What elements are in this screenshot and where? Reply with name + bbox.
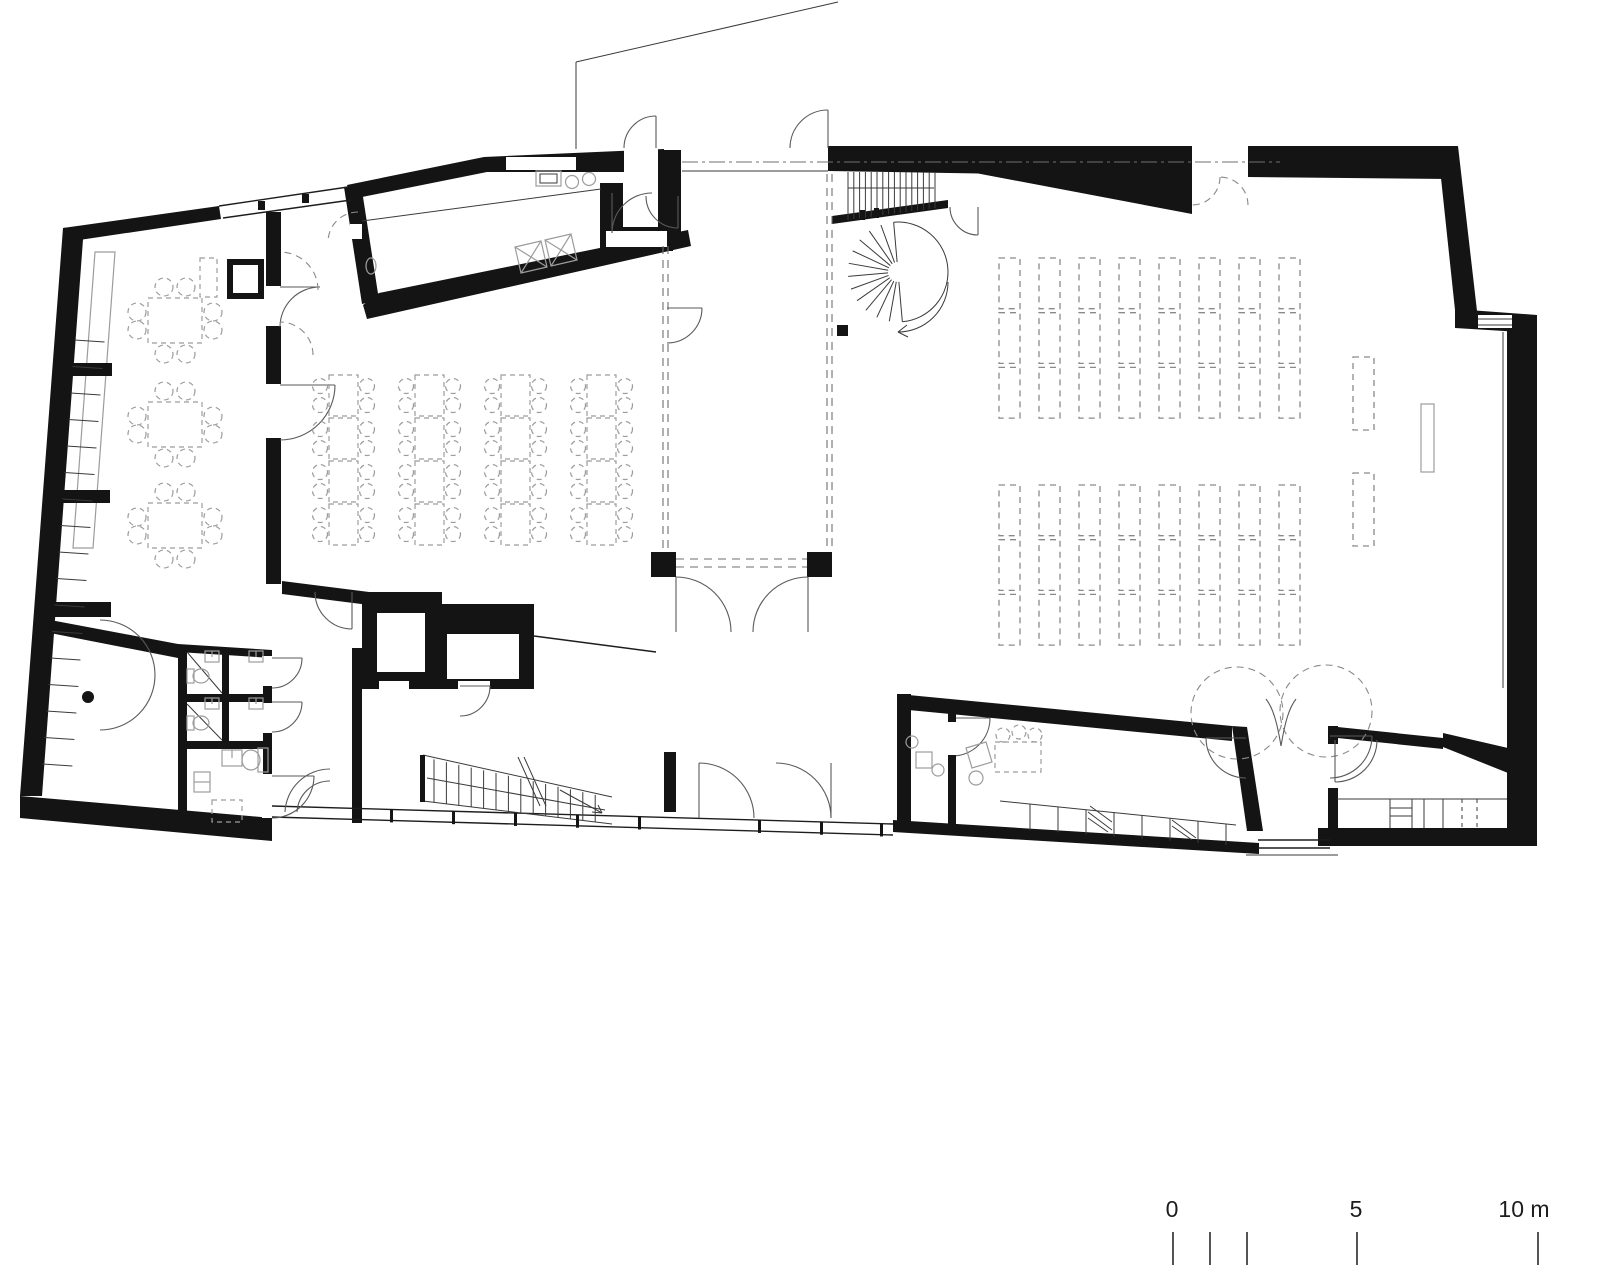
spiral-stair [848,222,948,337]
corner-room-step-wall [1443,733,1508,773]
floor-plan-sheet: 0 5 10 m [0,0,1600,1274]
top-left-wall [63,206,221,242]
entrance-right-pier [1328,726,1338,744]
wc-corridor-wall [352,648,362,823]
entrance-left-pier [1232,726,1263,831]
pew-benches [999,258,1300,645]
lectern [1421,404,1434,472]
cooktop-burner [566,176,579,189]
corner-room-top-wall [1328,726,1443,749]
office-bottom-wall [893,820,1259,854]
bottom-right-wall [1318,828,1537,846]
side-benches [1353,357,1374,546]
wc-fixtures [82,651,268,822]
atrium-column-left [651,552,676,577]
cooktop-burner [583,173,596,186]
entrance-swing-right [1280,665,1372,757]
kitchen-left-wall [344,184,379,304]
right-wall [1507,327,1537,846]
interior-walls [45,145,948,830]
hall-top-wall-wedge [965,171,1192,214]
left-wall [20,226,84,796]
door-swings [100,110,1377,818]
corner-room-cabinets [1337,799,1507,828]
office-left-pier [897,694,911,830]
floor-drain [82,691,94,703]
hall-ne-slanted-wall [1441,146,1477,311]
floor-plan-drawing [0,0,1600,1274]
dining-tables [128,258,222,568]
facade-pier [664,752,676,812]
atrium-column-right [807,552,832,577]
dining-bottom-wall [45,619,178,658]
seminar-tables [313,375,633,545]
bottom-left-wall [20,796,272,841]
corner-room-left-wall [1328,788,1338,832]
